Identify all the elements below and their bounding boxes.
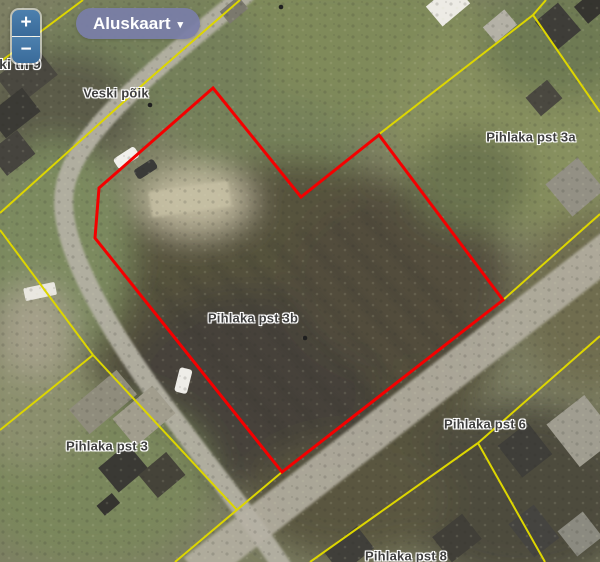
address-dot: [279, 5, 284, 10]
zoom-out-button[interactable]: −: [12, 37, 40, 63]
aerial-basemap[interactable]: [0, 0, 600, 562]
zoom-control: + −: [10, 8, 42, 65]
zoom-in-button[interactable]: +: [12, 10, 40, 36]
chevron-down-icon: ▾: [177, 18, 183, 31]
address-dot: [303, 336, 308, 341]
basemap-dropdown-button[interactable]: Aluskaart ▾: [76, 8, 200, 39]
address-dot: [148, 103, 153, 108]
basemap-button-label: Aluskaart: [93, 14, 170, 34]
grain-overlay: [0, 0, 600, 562]
map-viewport: ki tn 9Veski põikPihlaka pst 3aPihlaka p…: [0, 0, 600, 562]
